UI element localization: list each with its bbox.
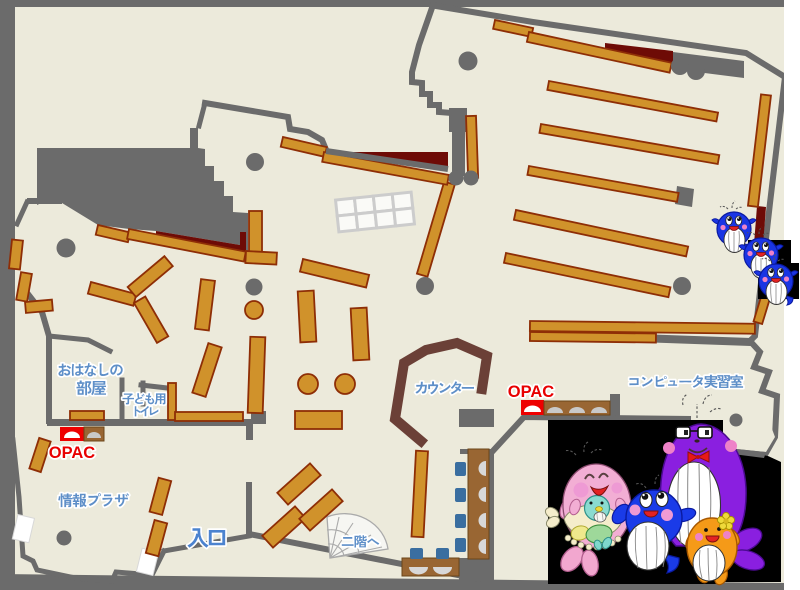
svg-text:OPAC: OPAC	[508, 383, 555, 401]
svg-text:OPAC: OPAC	[49, 444, 96, 462]
